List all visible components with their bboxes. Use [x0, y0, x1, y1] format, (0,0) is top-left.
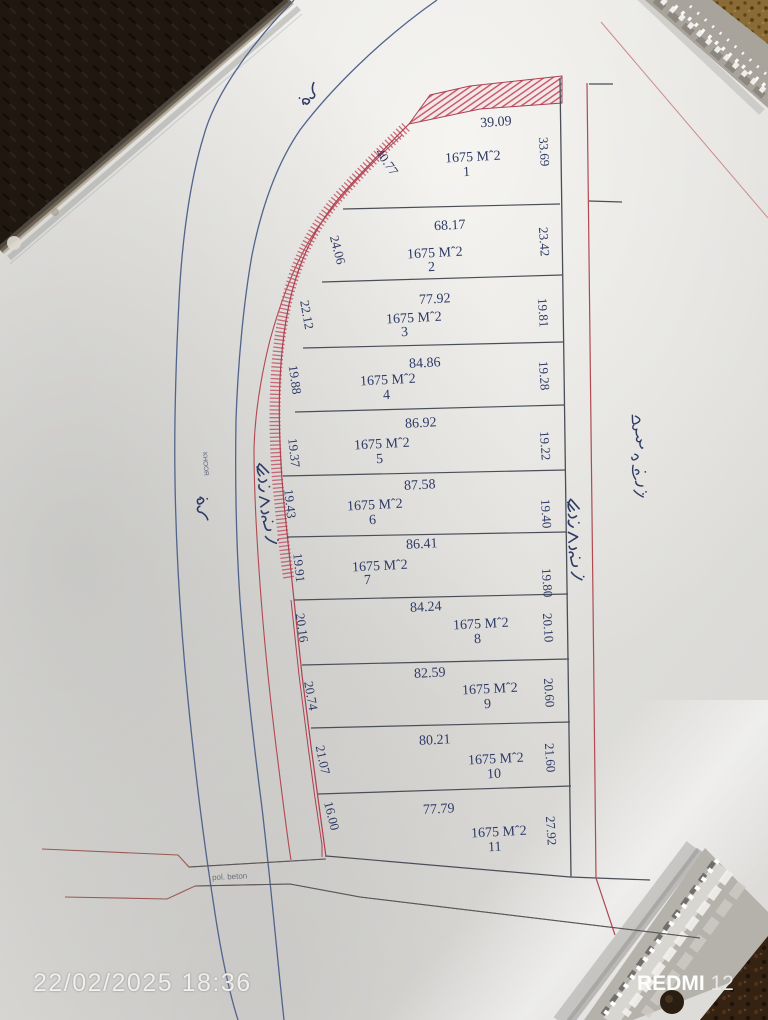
svg-text:5: 5: [376, 452, 384, 467]
svg-text:1675 Mˆ2: 1675 Mˆ2: [468, 751, 524, 769]
svg-text:9: 9: [484, 697, 492, 712]
svg-text:84.86: 84.86: [409, 355, 441, 372]
svg-text:19.22: 19.22: [537, 431, 554, 461]
svg-text:87.58: 87.58: [404, 477, 436, 494]
svg-text:REDMI 12: REDMI 12: [637, 972, 734, 995]
svg-text:4: 4: [383, 388, 391, 403]
svg-text:10: 10: [487, 767, 502, 783]
svg-text:21.60: 21.60: [542, 743, 559, 773]
svg-text:86.41: 86.41: [406, 536, 438, 553]
svg-text:6: 6: [369, 513, 377, 528]
svg-text:77.79: 77.79: [423, 801, 455, 818]
svg-text:77.92: 77.92: [419, 291, 451, 308]
svg-text:27.92: 27.92: [543, 816, 560, 846]
svg-text:19.28: 19.28: [536, 361, 553, 391]
svg-text:80.21: 80.21: [419, 732, 451, 749]
svg-text:1675 Mˆ2: 1675 Mˆ2: [352, 558, 408, 576]
svg-text:82.59: 82.59: [414, 665, 446, 682]
svg-text:39.09: 39.09: [480, 114, 512, 131]
svg-text:pol. beton: pol. beton: [212, 871, 248, 882]
svg-text:1: 1: [463, 165, 471, 180]
svg-text:19.43: 19.43: [281, 488, 299, 519]
svg-text:19.37: 19.37: [285, 437, 303, 468]
svg-text:19.81: 19.81: [535, 298, 552, 328]
svg-text:86.92: 86.92: [405, 415, 437, 432]
svg-text:3: 3: [401, 325, 409, 340]
svg-text:1675 Mˆ2: 1675 Mˆ2: [354, 436, 410, 454]
svg-text:19.80: 19.80: [539, 568, 556, 598]
svg-text:84.24: 84.24: [410, 599, 442, 616]
svg-text:68.17: 68.17: [434, 218, 466, 235]
svg-text:1675 Mˆ2: 1675 Mˆ2: [445, 149, 501, 167]
svg-text:19.40: 19.40: [538, 499, 555, 529]
svg-text:11: 11: [488, 840, 502, 856]
svg-text:1675 Mˆ2: 1675 Mˆ2: [360, 372, 416, 390]
svg-text:1675 Mˆ2: 1675 Mˆ2: [386, 310, 442, 328]
svg-text:1675 Mˆ2: 1675 Mˆ2: [347, 497, 403, 515]
svg-text:19.91: 19.91: [290, 552, 308, 583]
svg-text:20.10: 20.10: [540, 613, 557, 643]
svg-text:1675 Mˆ2: 1675 Mˆ2: [462, 681, 518, 699]
svg-text:33.69: 33.69: [536, 137, 553, 167]
svg-text:22/02/2025 18:36: 22/02/2025 18:36: [33, 969, 252, 997]
svg-text:23.42: 23.42: [536, 227, 553, 257]
svg-text:1675 Mˆ2: 1675 Mˆ2: [407, 245, 463, 263]
svg-text:8: 8: [474, 632, 482, 647]
svg-text:20.60: 20.60: [541, 678, 558, 708]
svg-text:1675 Mˆ2: 1675 Mˆ2: [453, 616, 509, 634]
svg-text:7: 7: [364, 573, 372, 588]
svg-text:2: 2: [428, 260, 436, 275]
